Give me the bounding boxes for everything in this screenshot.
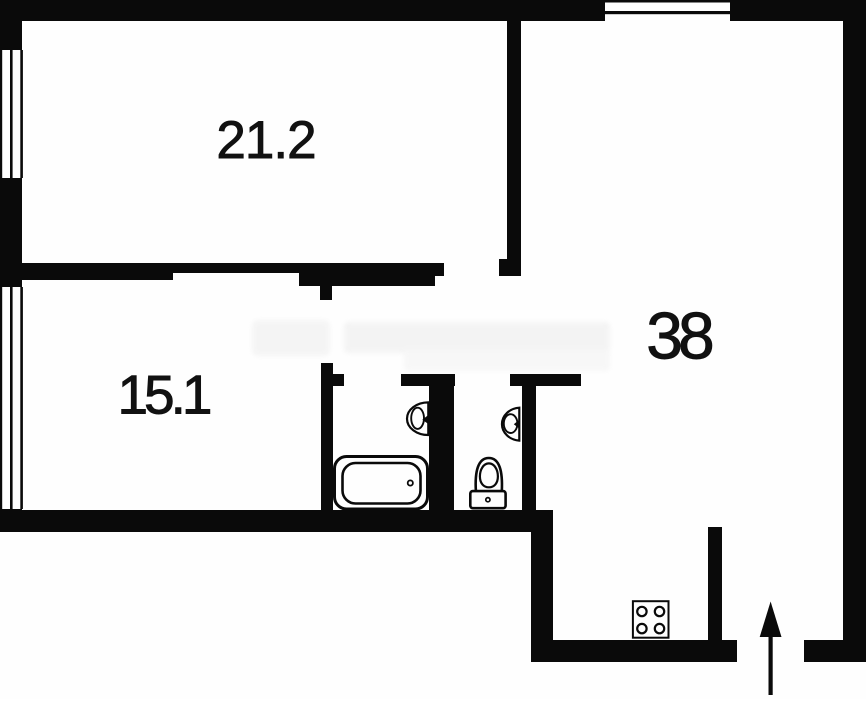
svg-text:21.2: 21.2 xyxy=(216,111,315,170)
svg-text:15.1: 15.1 xyxy=(117,364,209,426)
svg-text:38: 38 xyxy=(646,299,712,373)
